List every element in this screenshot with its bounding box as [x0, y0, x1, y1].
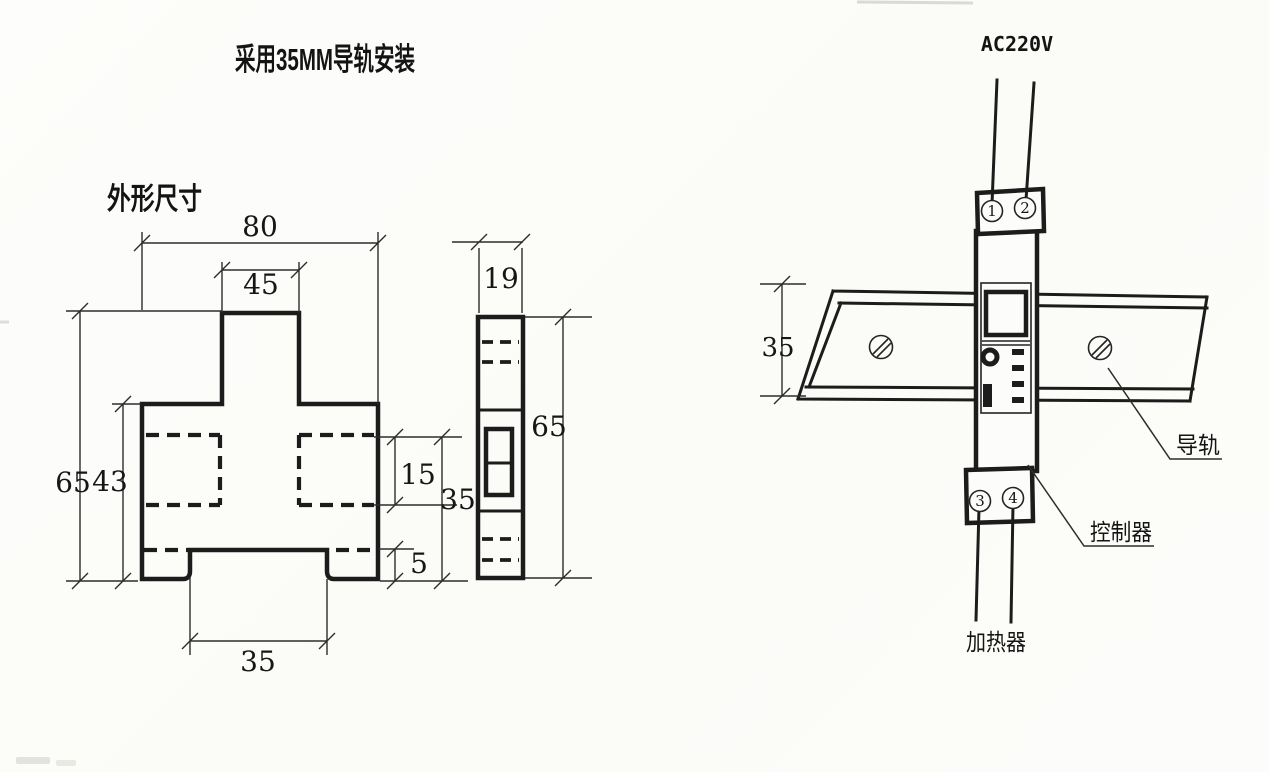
terminal-3-number: 3 [975, 492, 985, 510]
callout-controller: 控制器 [1028, 465, 1154, 546]
terminal-2: 2 [1015, 198, 1036, 219]
front-view-label: 外形尺寸 [107, 183, 202, 216]
scan-smudge-top [857, 2, 973, 3]
wires-power [992, 80, 1034, 204]
dim-side-width-text: 19 [483, 262, 519, 295]
dim-rail-width: 35 [760, 276, 806, 404]
dim-neck-width: 45 [214, 262, 307, 313]
dim-lines [378, 541, 414, 589]
device-display [986, 292, 1026, 335]
dim-total-height: 65 [55, 303, 222, 589]
rail-hole-left [870, 336, 893, 359]
callout-rail: 导轨 [1108, 368, 1222, 459]
heater-label: 加热器 [966, 629, 1026, 655]
terminal-block-top: 1 2 [977, 80, 1044, 234]
terminal-4-number: 4 [1008, 489, 1018, 507]
dim-total-width: 80 [134, 210, 386, 404]
scanned-diagram-page: 采用35MM导轨安装 外形尺寸 80 45 65 43 [0, 0, 1269, 772]
dim-lines [182, 577, 335, 655]
dim-body-height: 43 [92, 396, 141, 589]
device-knob [983, 350, 997, 364]
dim-body-height-text: 43 [92, 465, 128, 498]
rail-label: 导轨 [1176, 432, 1220, 458]
dim-lines [525, 309, 592, 586]
dim-total-width-text: 80 [242, 210, 278, 243]
drawing-title: 采用35MM导轨安装 [235, 42, 415, 77]
dim-total-height-text: 65 [55, 466, 91, 499]
front-view: 外形尺寸 80 45 65 43 15 [55, 183, 476, 678]
dim-side-height: 65 [525, 309, 592, 586]
controller-label: 控制器 [1090, 519, 1152, 545]
terminal-3: 3 [970, 491, 991, 512]
rail-hole-left-hatch [873, 339, 891, 357]
dim-foot-height: 5 [378, 541, 428, 589]
dim-neck-width-text: 45 [243, 268, 279, 301]
install-view: AC220V 35 [760, 32, 1222, 655]
power-label: AC220V [981, 32, 1053, 56]
terminal-4: 4 [1003, 488, 1024, 509]
dim-side-height-text: 65 [531, 410, 567, 443]
terminal-1-number: 1 [987, 202, 997, 220]
front-outline [142, 313, 378, 579]
device-led [1012, 365, 1024, 371]
device-led [1012, 349, 1024, 355]
terminal-1: 1 [982, 201, 1003, 222]
dim-clip-height-text: 15 [400, 458, 436, 491]
scan-smudge-bottom-left [16, 757, 50, 764]
scan-smudge-bottom-left-2 [56, 760, 76, 766]
dim-rail-width-text: 35 [761, 333, 794, 363]
dim-rail-zone-text: 35 [440, 483, 476, 516]
scan-artifacts [0, 2, 973, 766]
device-switch [983, 384, 992, 407]
device-led [1012, 397, 1024, 403]
dim-foot-height-text: 5 [410, 547, 428, 580]
drawing-canvas: 采用35MM导轨安装 外形尺寸 80 45 65 43 [0, 0, 1269, 772]
side-view: 19 65 [452, 234, 592, 586]
terminal-2-number: 2 [1020, 199, 1030, 217]
dim-notch-width-text: 35 [240, 645, 276, 678]
device-led [1012, 381, 1024, 387]
rail-hole-right-hatch [1092, 340, 1110, 358]
dim-notch-width: 35 [182, 577, 335, 678]
dim-side-width: 19 [452, 234, 530, 313]
rail-hole-right [1089, 337, 1112, 360]
terminal-block-bottom: 3 4 [966, 468, 1033, 622]
front-hidden-lines [144, 435, 376, 550]
dim-lines [134, 232, 386, 404]
